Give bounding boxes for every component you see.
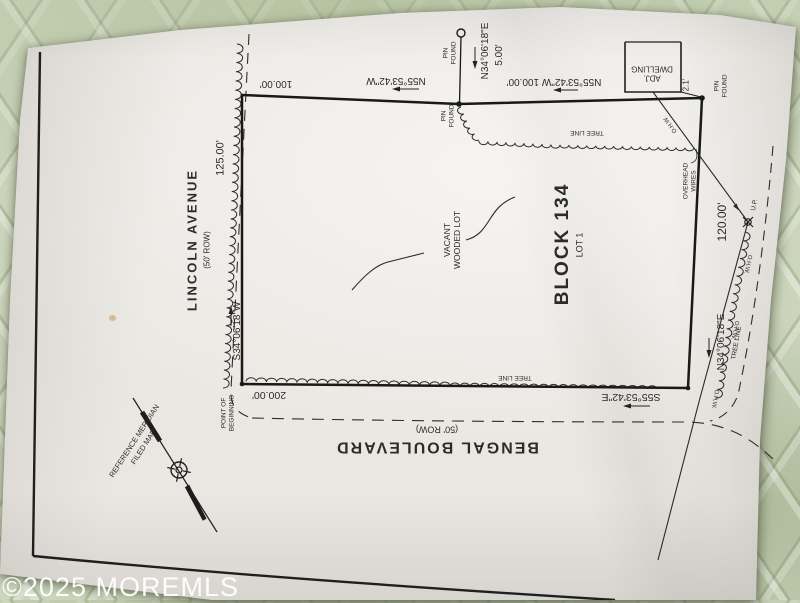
lot-boundary — [242, 95, 702, 388]
point-of-beginning-label: POINT OF BEGINNING — [220, 395, 235, 431]
compass-rosette-icon — [167, 458, 190, 481]
boundary-south — [242, 384, 688, 388]
tree-line-label-bottom: TREE LINE — [498, 373, 532, 381]
tree-line-top — [479, 141, 694, 151]
east-distance: 120.00' — [715, 203, 729, 242]
utility-pole-symbol — [743, 217, 753, 227]
tree-line-label-top: TREE LINE — [570, 128, 604, 136]
west-bearing: S34°06'18"W — [232, 302, 244, 361]
mls-watermark: ©2025 MOREMLS — [2, 572, 239, 603]
break-line — [352, 197, 515, 290]
pin-found-right: PIN FOUND — [713, 74, 728, 97]
adjacent-dwelling-label: ADJ. DWELLING — [631, 64, 673, 83]
overhead-wires-label: OVERHEAD WIRES — [682, 163, 697, 199]
dwelling-offset: 2.1' — [681, 79, 690, 92]
boundary-north-right — [459, 98, 702, 104]
pin-found-top: PIN FOUND — [442, 41, 457, 64]
sheet-border — [33, 52, 615, 600]
street-bengal-boulevard: BENGAL BOULEVARD — [335, 437, 539, 456]
block-number: BLOCK 134 — [552, 183, 574, 306]
wire-arrowhead — [733, 204, 739, 211]
bengal-row-width: (50' ROW) — [416, 424, 458, 435]
west-distance: 125.00' — [215, 140, 228, 176]
right-row-line — [710, 146, 773, 421]
pin-found-mid: PIN FOUND — [440, 104, 455, 127]
point-of-beginning-pin — [240, 382, 245, 387]
lot-number: LOT 1 — [575, 233, 586, 258]
east-bearing: N34°06'18"E — [716, 314, 728, 371]
north-left-distance: 100.00' — [260, 77, 293, 89]
lincoln-row-width: (50' ROW) — [202, 231, 211, 269]
pin-found-circle — [457, 29, 465, 37]
boundary-north-left — [242, 95, 459, 104]
south-bearing: S55°53'42"E — [602, 391, 661, 403]
survey-drawing — [0, 0, 800, 600]
boundary-east — [688, 98, 702, 388]
photo-of-survey: { "watermark": "©2025 MOREMLS", "streets… — [0, 0, 800, 600]
jog-distance: 5.00' — [494, 44, 506, 65]
north-right-bearing: N55°53'42"W 100.00' — [507, 75, 602, 87]
jog-bearing: N34°06'18"E — [480, 23, 492, 80]
tree-line-top-curl — [458, 107, 479, 140]
north-left-bearing: N55°53'42"W — [366, 74, 426, 86]
south-distance: 200.00' — [252, 389, 286, 401]
bearing-arrows — [229, 47, 712, 409]
overhead-wires-leader — [691, 149, 697, 163]
north-arrow-spear — [185, 485, 207, 521]
street-lincoln-avenue: LINCOLN AVENUE — [184, 169, 199, 311]
pin-markers — [240, 29, 705, 390]
vacant-wooded-lot: VACANT WOODED LOT — [442, 211, 462, 269]
